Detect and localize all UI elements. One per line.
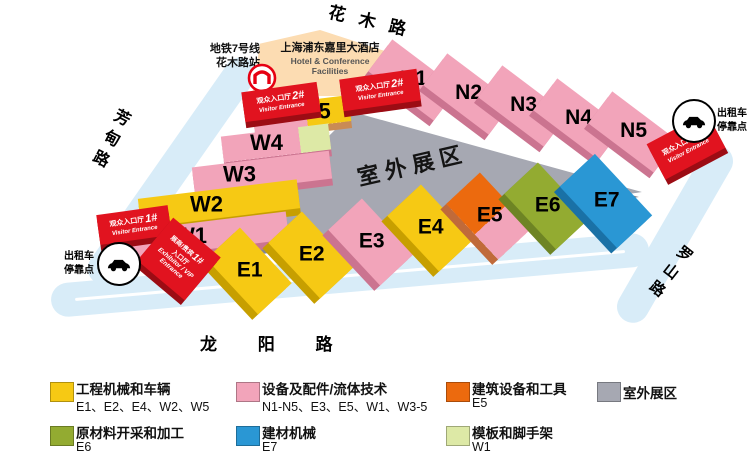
road-label-west: 芳甸路 <box>82 103 135 175</box>
legend-halls-0: E1、E2、E4、W2、W5 <box>76 396 209 415</box>
hall-n3-label: N3 <box>510 93 537 117</box>
hall-e2-label: E2 <box>299 242 325 266</box>
legend-halls-4: E6 <box>76 440 91 454</box>
hall-w3-label: W3 <box>223 162 256 188</box>
hall-w2-label: W2 <box>190 191 223 217</box>
legend-swatch-yellow <box>50 382 74 402</box>
expo-map: 上海浦东嘉里大酒店 Hotel & Conference Facilities … <box>0 0 750 468</box>
taxi-west-line1: 出租车 <box>48 250 94 264</box>
hall-n2-label: N2 <box>455 81 482 105</box>
legend-halls-6: W1 <box>472 440 491 454</box>
legend-swatch-olive <box>50 426 74 446</box>
legend-title-1: 设备及配件/流体技术 <box>262 378 387 398</box>
legend-swatch-light-green <box>446 426 470 446</box>
metro-line: 地铁7号线 <box>198 42 260 56</box>
hall-w4-label: W4 <box>250 130 283 156</box>
legend-title-5: 建材机械 <box>262 422 316 442</box>
legend-title-2: 建筑设备和工具 <box>472 378 567 398</box>
legend-swatch-orange <box>446 382 470 402</box>
taxi-icon-west <box>97 242 141 286</box>
taxi-stand-label-east: 出租车 停靠点 <box>717 107 747 134</box>
taxi-east-line2: 停靠点 <box>717 121 747 135</box>
taxi-west-line2: 停靠点 <box>48 264 94 278</box>
road-label-north: 花木路 <box>326 0 422 43</box>
legend-title-0: 工程机械和车辆 <box>76 378 171 398</box>
legend-swatch-gray <box>597 382 621 402</box>
taxi-stand-label-west: 出租车 停靠点 <box>48 250 94 277</box>
legend-title-6: 模板和脚手架 <box>472 422 553 442</box>
hall-e1-label: E1 <box>237 258 263 282</box>
legend-title-3: 室外展区 <box>623 382 677 402</box>
hall-e3-label: E3 <box>359 229 385 253</box>
road-label-south: 龙 阳 路 <box>200 330 350 355</box>
legend-swatch-blue <box>236 426 260 446</box>
legend-swatch-pink <box>236 382 260 402</box>
hall-e6-label: E6 <box>535 193 561 217</box>
hotel-name-cn: 上海浦东嘉里大酒店 <box>266 42 394 56</box>
taxi-icon-east <box>672 99 716 143</box>
taxi-east-line1: 出租车 <box>717 107 747 121</box>
legend-halls-5: E7 <box>262 440 277 454</box>
hall-e7-label: E7 <box>594 188 620 212</box>
hall-n5-label: N5 <box>620 119 647 143</box>
hall-n4-label: N4 <box>565 106 592 130</box>
legend-halls-2: E5 <box>472 396 487 410</box>
hall-e5-label: E5 <box>477 203 503 227</box>
legend-halls-1: N1-N5、E3、E5、W1、W3-5 <box>262 396 427 415</box>
legend-title-4: 原材料开采和加工 <box>76 422 184 442</box>
hall-e4-label: E4 <box>418 215 444 239</box>
